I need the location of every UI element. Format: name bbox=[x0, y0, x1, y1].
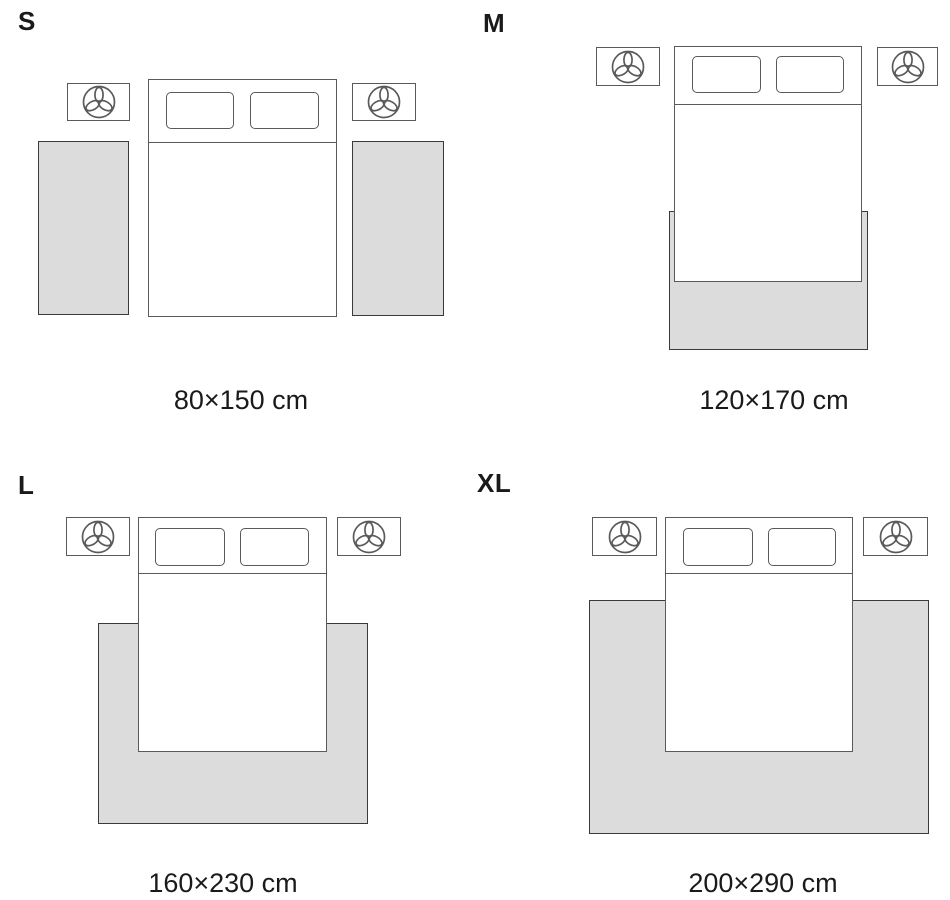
pillow-right bbox=[768, 528, 836, 566]
bed bbox=[138, 517, 327, 752]
bed bbox=[674, 46, 862, 282]
size-dimensions-xl: 200×290 cm bbox=[592, 868, 934, 899]
nightstand-left bbox=[592, 517, 657, 556]
nightstand-right bbox=[877, 47, 938, 86]
size-label-s: S bbox=[18, 6, 36, 37]
nightstand-right bbox=[337, 517, 401, 556]
nightstand-right bbox=[863, 517, 928, 556]
size-dimensions-m: 120×170 cm bbox=[603, 385, 945, 416]
nightstand-left bbox=[67, 83, 130, 121]
pillow-left bbox=[692, 56, 761, 93]
rug-size-guide: S 80×150 cm M bbox=[0, 0, 950, 900]
plant-icon bbox=[352, 520, 386, 554]
bed-headboard bbox=[675, 47, 861, 105]
rug-left-runner bbox=[38, 141, 129, 315]
pillow-right bbox=[250, 92, 319, 129]
pillow-left bbox=[683, 528, 753, 566]
pillow-right bbox=[776, 56, 844, 93]
nightstand-left bbox=[66, 517, 130, 556]
bed-headboard bbox=[139, 518, 326, 574]
plant-icon bbox=[608, 520, 642, 554]
plant-icon bbox=[611, 50, 645, 84]
bed-headboard bbox=[666, 518, 852, 574]
rug-right-runner bbox=[352, 141, 444, 316]
plant-icon bbox=[891, 50, 925, 84]
size-dimensions-s: 80×150 cm bbox=[38, 385, 444, 416]
pillow-left bbox=[166, 92, 234, 129]
plant-icon bbox=[81, 520, 115, 554]
pillow-right bbox=[240, 528, 309, 566]
bed bbox=[665, 517, 853, 752]
plant-icon bbox=[879, 520, 913, 554]
bed-headboard bbox=[149, 80, 336, 143]
size-label-l: L bbox=[18, 470, 34, 501]
nightstand-right bbox=[352, 83, 416, 121]
plant-icon bbox=[367, 85, 401, 119]
plant-icon bbox=[82, 85, 116, 119]
size-label-m: M bbox=[483, 8, 505, 39]
bed bbox=[148, 79, 337, 317]
pillow-left bbox=[155, 528, 225, 566]
nightstand-left bbox=[596, 47, 660, 86]
size-label-xl: XL bbox=[477, 468, 511, 499]
size-dimensions-l: 160×230 cm bbox=[38, 868, 408, 899]
